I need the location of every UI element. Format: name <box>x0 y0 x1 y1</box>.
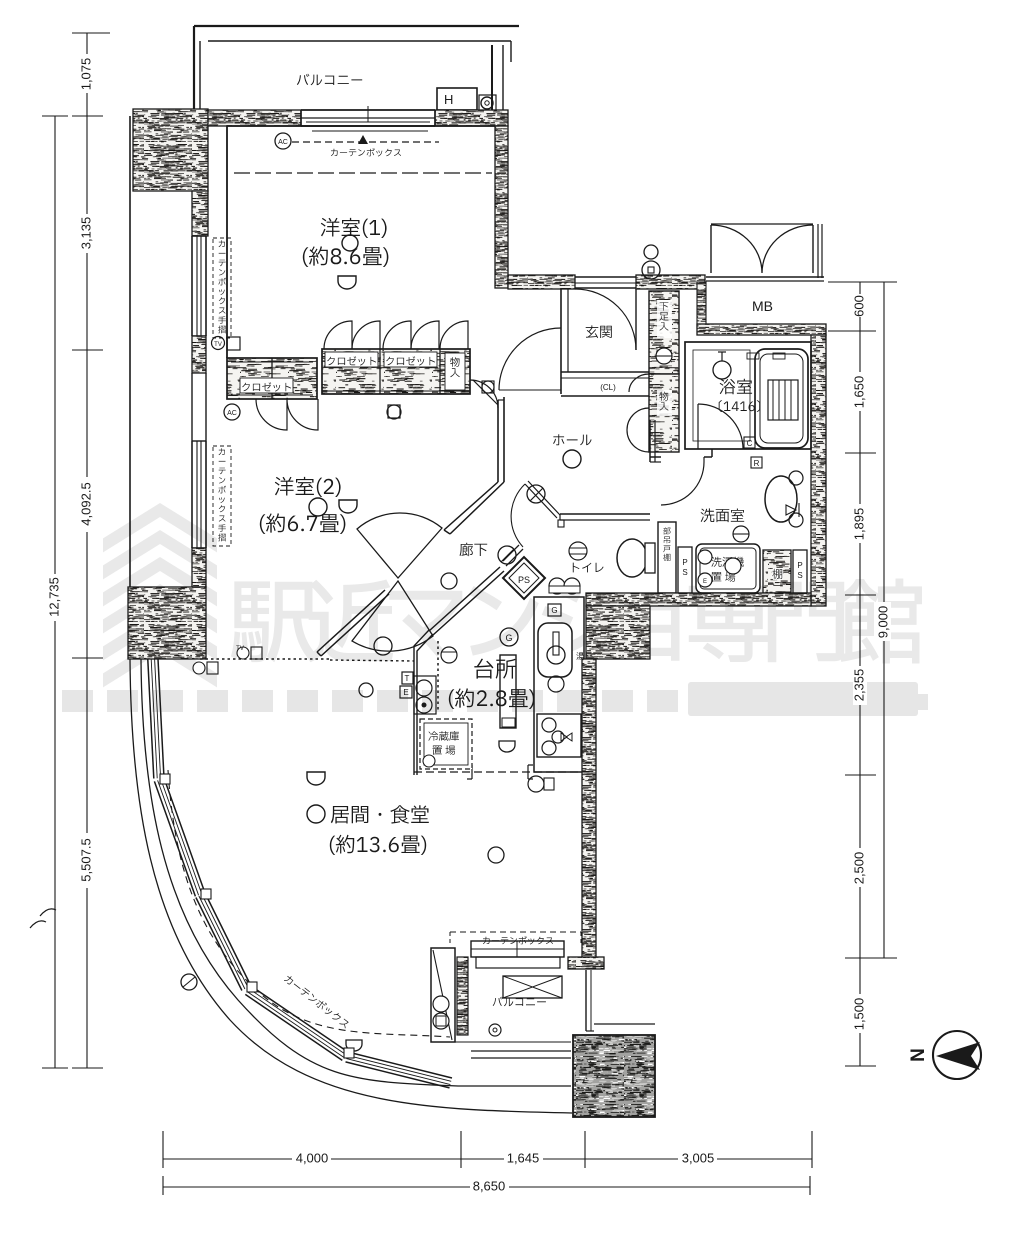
svg-text:E: E <box>403 688 408 697</box>
svg-text:1,650: 1,650 <box>851 376 866 409</box>
svg-text:9,000: 9,000 <box>875 606 890 639</box>
svg-text:4,000: 4,000 <box>296 1150 329 1165</box>
svg-text:E: E <box>703 579 707 585</box>
svg-text:1,500: 1,500 <box>851 998 866 1031</box>
svg-text:AC: AC <box>278 139 288 146</box>
svg-text:R: R <box>754 459 760 468</box>
svg-text:T: T <box>405 674 410 683</box>
svg-text:12,735: 12,735 <box>46 577 61 617</box>
svg-text:1,645: 1,645 <box>507 1150 540 1165</box>
svg-text:G: G <box>505 633 512 643</box>
svg-text:1,075: 1,075 <box>78 58 93 91</box>
svg-text:1,895: 1,895 <box>851 508 866 541</box>
svg-text:(CL): (CL) <box>600 383 616 392</box>
svg-text:P: P <box>682 558 687 567</box>
svg-text:600: 600 <box>851 295 866 317</box>
svg-text:8,650: 8,650 <box>473 1178 506 1193</box>
svg-text:2,355: 2,355 <box>851 669 866 702</box>
svg-text:N: N <box>908 1048 929 1062</box>
svg-text:5,507.5: 5,507.5 <box>78 838 93 881</box>
svg-text:4,092.5: 4,092.5 <box>78 482 93 525</box>
svg-text:S: S <box>682 568 687 577</box>
svg-text:S: S <box>797 571 802 580</box>
svg-text:3,135: 3,135 <box>78 217 93 250</box>
svg-text:2,500: 2,500 <box>851 852 866 885</box>
svg-text:H: H <box>444 92 453 107</box>
svg-text:C: C <box>747 439 753 448</box>
svg-text:G: G <box>551 606 557 615</box>
svg-text:PS: PS <box>518 575 530 585</box>
svg-text:TV: TV <box>214 342 222 348</box>
svg-text:P: P <box>797 561 802 570</box>
svg-text:3,005: 3,005 <box>682 1150 715 1165</box>
svg-text:AC: AC <box>227 410 237 417</box>
svg-text:TV: TV <box>236 646 244 652</box>
svg-text:MB: MB <box>752 298 773 314</box>
